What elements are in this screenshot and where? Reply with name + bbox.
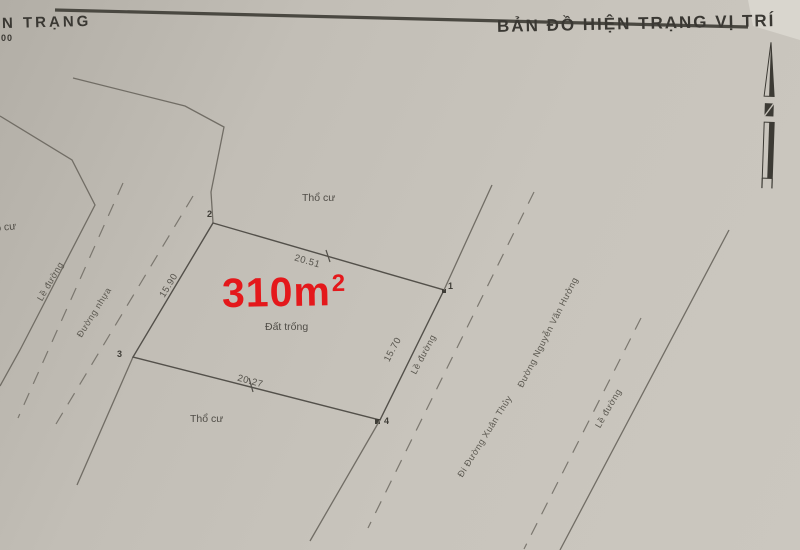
vertex-label-3: 3 bbox=[117, 350, 122, 359]
page-title-left-fragment: N TRẠNG bbox=[2, 14, 92, 31]
land-label-tho-cu-bottom: Thổ cư bbox=[190, 414, 223, 425]
map-linework bbox=[0, 0, 800, 550]
parcel-area-label: 310m2 bbox=[222, 271, 347, 314]
vertex-label-2: 2 bbox=[207, 210, 212, 219]
parcel-area-exponent: 2 bbox=[331, 270, 346, 297]
scanned-map-page: N TRẠNG 400 BẢN ĐỒ HIỆN TRẠNG VỊ TRÍ Thổ… bbox=[0, 0, 800, 550]
vertex-label-4: 4 bbox=[384, 417, 389, 426]
land-label-tho-cu-top: Thổ cư bbox=[302, 193, 335, 204]
vertex-label-1: 1 bbox=[448, 282, 453, 291]
parcel-interior-label: Đất trống bbox=[265, 322, 308, 333]
parcel-area-value: 310m bbox=[222, 268, 332, 316]
right-road-edges bbox=[310, 185, 729, 550]
north-arrow-icon bbox=[761, 42, 777, 188]
map-scale-fragment: 400 bbox=[0, 34, 13, 43]
